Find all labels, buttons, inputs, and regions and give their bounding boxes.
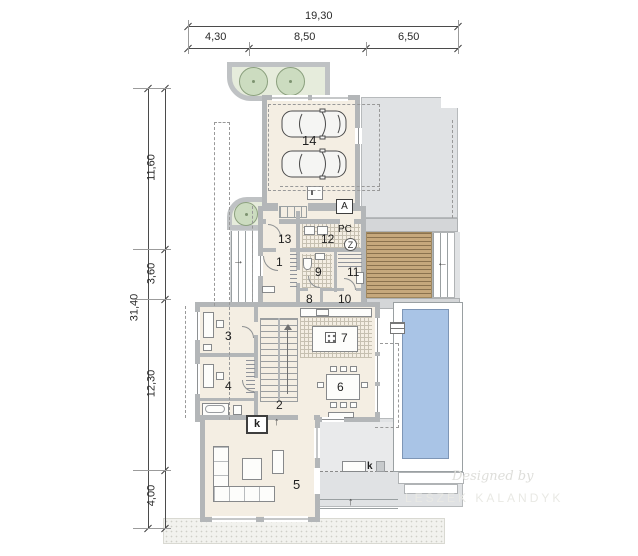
boiler-symbol: Z: [344, 238, 357, 251]
window: [375, 386, 380, 412]
wooden-deck: [366, 232, 432, 298]
terrace-steps: [318, 499, 398, 509]
kitchen-sink-icon: [316, 309, 329, 316]
chair: [330, 366, 337, 372]
dim-left-seg2: 3,60: [147, 256, 158, 292]
terrace-door-opening: [314, 468, 320, 494]
door-opening: [308, 288, 320, 291]
room-label-14: 14: [302, 134, 316, 147]
washer-icon: [304, 226, 315, 235]
terrace-grill-box: [376, 461, 385, 472]
chair: [361, 382, 368, 388]
wall: [200, 398, 255, 401]
overhang-line: [375, 427, 399, 428]
stair-arrow-line: [287, 328, 288, 394]
chair: [216, 320, 224, 328]
dim-guide: [133, 470, 171, 471]
wardrobe-shelves: [290, 254, 297, 288]
terrace-door: [322, 417, 344, 422]
dim-guide: [458, 20, 459, 54]
entry-steps: [279, 206, 307, 218]
chair: [350, 402, 357, 408]
stove-icon: [325, 332, 336, 343]
window: [375, 318, 380, 352]
terrace-steps-arrow-icon: ↑: [348, 497, 354, 508]
stair-rail: [278, 318, 280, 402]
overhang-line: [398, 343, 399, 428]
door-opening: [254, 322, 258, 335]
dim-line-top-segments: [188, 48, 458, 49]
chair: [216, 372, 224, 380]
room-label-5: 5: [293, 478, 300, 491]
room-label-10: 10: [338, 293, 351, 305]
window: [314, 428, 320, 458]
desk: [203, 312, 214, 338]
chair: [350, 366, 357, 372]
dim-guide: [133, 249, 171, 250]
dim-guide: [366, 42, 367, 56]
kitchen-counter: [300, 308, 372, 317]
overhang-line: [229, 122, 230, 420]
dim-guide: [188, 20, 189, 54]
room-label-8: 8: [306, 293, 313, 305]
room-label-4: 4: [225, 380, 232, 392]
watermark-line1: Designed by: [452, 470, 533, 483]
floor-plan: ↑ ← →: [0, 0, 638, 556]
retaining-wall-band: [358, 218, 458, 232]
toilet-icon: [233, 405, 242, 415]
dim-left-seg3: 12,30: [147, 362, 158, 406]
utility-label: PC: [338, 225, 352, 235]
understair-hatch: [246, 360, 255, 396]
dim-left-seg4: 4,00: [147, 478, 158, 514]
entry-door-opening: [258, 256, 263, 276]
room-label-2: 2: [276, 399, 283, 411]
toilet-icon: [303, 258, 312, 270]
window: [375, 356, 380, 382]
wall: [334, 252, 337, 292]
hall-bench: [262, 286, 275, 293]
room-label-7: 7: [341, 332, 348, 344]
dim-top-total: 19,30: [305, 11, 333, 22]
watermark-line2: LESZEK KALANDYK: [405, 492, 563, 504]
entry-arrow-icon: →: [233, 256, 244, 267]
deck-arrow-icon: ←: [437, 258, 448, 269]
window: [212, 516, 256, 522]
pool: [402, 309, 449, 459]
window: [195, 312, 200, 340]
window: [264, 516, 308, 522]
chair: [340, 402, 347, 408]
dim-line-top-total: [188, 26, 458, 27]
room-label-6: 6: [337, 381, 344, 393]
dim-top-seg2: 8,50: [294, 32, 315, 43]
overhang-line: [280, 186, 380, 187]
overhang-line: [214, 122, 230, 123]
room-label-12: 12: [321, 233, 334, 245]
gate-line: [452, 120, 453, 218]
deck-edge-strip: [455, 232, 460, 298]
chair: [317, 382, 324, 388]
dim-guide: [133, 528, 171, 529]
overhang-line: [185, 306, 186, 418]
cabinet: [203, 344, 212, 351]
overhang-line: [252, 206, 253, 302]
dim-line-left-segments: [165, 88, 166, 528]
flue-arrow-icon: ↑: [274, 417, 280, 428]
sink-icon: [315, 253, 325, 260]
garage-overhang-box: [268, 104, 380, 191]
dim-left-total: 31,40: [130, 286, 141, 330]
room-label-11: 11: [347, 266, 359, 278]
overhang-line: [214, 122, 215, 306]
tree-icon: [234, 202, 258, 226]
shelf: [272, 450, 284, 474]
driveway-notch: [441, 96, 459, 108]
door-opening: [276, 248, 290, 252]
door-opening: [298, 415, 314, 422]
coffee-table: [242, 458, 262, 480]
dim-top-seg3: 6,50: [398, 32, 419, 43]
terrace-bench: [342, 461, 366, 472]
section-marker: A: [336, 199, 353, 214]
garage-door: [312, 95, 348, 101]
window: [195, 364, 200, 394]
dim-guide: [249, 42, 250, 56]
fireplace-box: k: [246, 415, 268, 434]
room-label-3: 3: [225, 330, 232, 342]
room-label-1: 1: [276, 256, 283, 268]
wall: [200, 353, 255, 357]
dim-guide: [133, 299, 171, 300]
terrace-fireplace-label: k: [367, 462, 373, 472]
sofa: [213, 486, 275, 502]
chair: [330, 402, 337, 408]
room-label-13: 13: [278, 233, 291, 245]
dim-left-seg1: 11,60: [147, 146, 158, 190]
overhang-line: [380, 343, 398, 344]
entry-walkway: [230, 230, 260, 304]
chair: [340, 366, 347, 372]
stair-arrow-head: [284, 320, 292, 330]
pool-ladder-icon: [390, 322, 405, 334]
garage-door: [272, 95, 308, 101]
bathtub-basin: [205, 405, 225, 413]
desk: [203, 364, 214, 388]
room-label-9: 9: [315, 266, 322, 278]
tree-icon: [239, 67, 268, 96]
tree-icon: [276, 67, 305, 96]
dim-top-seg1: 4,30: [205, 32, 226, 43]
dim-guide: [133, 88, 171, 89]
